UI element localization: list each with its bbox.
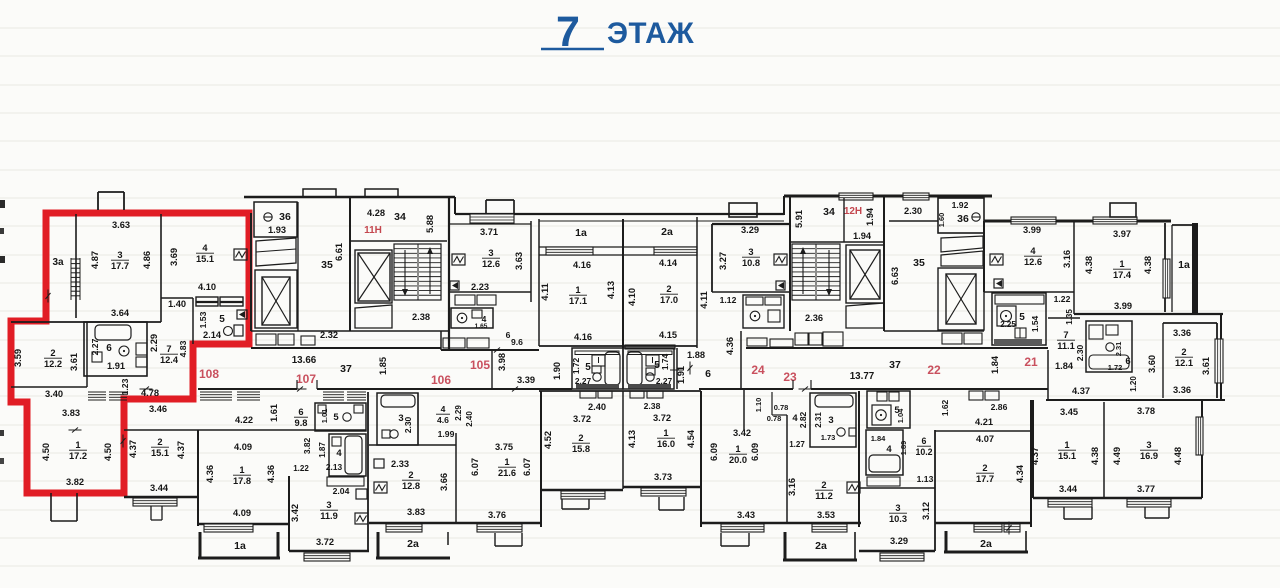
svg-text:3.83: 3.83 [407,507,425,517]
svg-text:107: 107 [296,372,316,386]
svg-text:20.0: 20.0 [729,455,747,465]
svg-text:11.2: 11.2 [815,491,833,501]
svg-text:2.32: 2.32 [320,330,338,340]
svg-text:21: 21 [1024,355,1038,369]
svg-text:15.8: 15.8 [572,444,590,454]
svg-text:4.34: 4.34 [1015,464,1025,483]
svg-text:2.13: 2.13 [326,462,343,472]
svg-text:4.37: 4.37 [1030,447,1040,465]
svg-text:13.77: 13.77 [850,371,875,382]
svg-text:3.16: 3.16 [787,478,797,496]
svg-text:15.1: 15.1 [1058,451,1076,461]
svg-text:1.85: 1.85 [378,357,388,375]
svg-text:3.63: 3.63 [112,220,130,230]
svg-text:3.99: 3.99 [1114,301,1132,311]
svg-text:37: 37 [340,363,352,375]
svg-text:3.44: 3.44 [150,483,169,493]
svg-text:4.07: 4.07 [976,434,994,444]
svg-text:37: 37 [889,359,901,371]
svg-text:3.16: 3.16 [1062,250,1072,268]
svg-text:4.36: 4.36 [266,465,276,483]
svg-text:2.29: 2.29 [149,334,159,352]
svg-text:6: 6 [922,436,927,446]
svg-text:4.37: 4.37 [176,441,186,459]
svg-text:2.31: 2.31 [814,412,823,428]
svg-text:4.28: 4.28 [367,208,385,218]
svg-text:15.1: 15.1 [196,254,214,264]
svg-text:2: 2 [157,437,162,447]
svg-text:4.16: 4.16 [574,332,592,342]
svg-text:10.2: 10.2 [915,447,932,457]
svg-text:6.09: 6.09 [709,443,719,461]
svg-text:1а: 1а [575,227,587,239]
svg-text:6.07: 6.07 [470,458,480,476]
svg-text:1.40: 1.40 [168,299,186,309]
svg-text:4.14: 4.14 [659,258,678,268]
svg-text:4.13: 4.13 [606,281,616,299]
svg-text:4.36: 4.36 [725,337,735,355]
svg-text:4.11: 4.11 [540,283,550,301]
svg-text:15.1: 15.1 [151,448,169,458]
svg-text:2.30: 2.30 [403,417,413,434]
svg-text:35: 35 [321,259,333,271]
svg-text:3.64: 3.64 [111,308,130,318]
svg-text:35: 35 [913,257,925,269]
svg-text:3.72: 3.72 [573,414,591,424]
svg-text:1.22: 1.22 [293,464,309,473]
svg-text:4: 4 [886,444,892,455]
svg-text:2: 2 [821,480,826,490]
svg-text:5: 5 [1019,312,1025,323]
svg-text:4.37: 4.37 [1072,386,1090,396]
svg-text:4.10: 4.10 [627,288,637,306]
svg-text:12.2: 12.2 [44,359,62,369]
svg-text:16.9: 16.9 [1140,451,1158,461]
svg-text:3.12: 3.12 [921,502,931,520]
svg-text:17.8: 17.8 [233,476,251,486]
svg-text:17.7: 17.7 [111,261,129,271]
svg-text:4.83: 4.83 [178,340,188,357]
svg-text:3.44: 3.44 [1059,484,1078,494]
svg-text:9.6: 9.6 [511,337,523,347]
svg-text:1.93: 1.93 [268,225,286,235]
svg-text:4.38: 4.38 [1090,447,1100,465]
svg-text:6: 6 [298,407,303,417]
svg-text:3.97: 3.97 [1113,229,1131,239]
svg-text:3.36: 3.36 [1173,385,1191,395]
svg-text:1.99: 1.99 [438,429,455,439]
svg-text:3.27: 3.27 [718,252,728,270]
svg-text:3.61: 3.61 [69,353,79,371]
svg-text:1.35: 1.35 [1065,309,1074,325]
svg-text:1.91: 1.91 [107,361,125,371]
svg-text:2.38: 2.38 [412,312,430,322]
svg-text:4.09: 4.09 [234,442,252,452]
svg-text:2.40: 2.40 [465,411,474,427]
svg-text:3.46: 3.46 [149,404,167,414]
svg-text:2.38: 2.38 [644,401,661,411]
svg-text:2.14: 2.14 [203,330,222,340]
svg-text:1.72: 1.72 [1108,363,1123,372]
svg-text:1.84: 1.84 [871,434,886,443]
svg-text:1а: 1а [1178,259,1190,271]
svg-text:1.27: 1.27 [789,440,805,449]
svg-text:105: 105 [470,358,490,372]
svg-text:1: 1 [575,285,580,295]
svg-text:1: 1 [735,444,740,454]
svg-text:4.54: 4.54 [686,429,696,448]
svg-text:7: 7 [166,344,171,354]
svg-text:1.01: 1.01 [320,409,329,424]
svg-text:6.61: 6.61 [334,243,344,261]
svg-text:21.6: 21.6 [498,468,516,478]
svg-text:3.42: 3.42 [733,428,751,438]
svg-text:5.88: 5.88 [425,215,435,233]
svg-text:6: 6 [705,368,711,380]
svg-text:9.8: 9.8 [295,418,308,428]
svg-text:3: 3 [895,503,900,513]
svg-text:1.13: 1.13 [917,474,934,484]
svg-text:12.8: 12.8 [402,481,420,491]
svg-text:1.73: 1.73 [821,433,836,442]
svg-text:34: 34 [823,206,835,218]
svg-text:4.10: 4.10 [198,282,216,292]
svg-text:4.86: 4.86 [142,251,152,269]
svg-text:17.0: 17.0 [660,295,678,305]
svg-text:0.78: 0.78 [767,414,782,423]
svg-text:2: 2 [1181,347,1186,357]
svg-text:1.10: 1.10 [754,398,763,413]
svg-text:3.43: 3.43 [737,510,755,520]
svg-text:12.1: 12.1 [1175,358,1193,368]
svg-text:36: 36 [279,211,291,223]
svg-text:6: 6 [506,330,511,340]
svg-text:11Н: 11Н [364,225,382,236]
svg-text:6: 6 [106,343,112,354]
svg-text:17.1: 17.1 [569,296,587,306]
svg-text:1а: 1а [234,540,246,552]
svg-text:3.29: 3.29 [741,225,759,235]
svg-text:3.63: 3.63 [514,252,524,270]
svg-text:6.07: 6.07 [522,458,532,476]
svg-text:12.4: 12.4 [160,355,179,365]
svg-text:4.21: 4.21 [975,417,993,427]
svg-text:0.78: 0.78 [774,403,789,412]
svg-text:3.72: 3.72 [653,413,671,423]
svg-text:3.59: 3.59 [13,349,23,367]
svg-text:2а: 2а [407,538,419,550]
svg-text:4.49: 4.49 [1112,447,1122,465]
svg-text:16.0: 16.0 [657,439,675,449]
svg-text:3: 3 [1146,440,1151,450]
svg-text:2.30: 2.30 [1075,345,1085,362]
svg-text:5: 5 [333,412,339,423]
svg-text:4.52: 4.52 [543,431,553,449]
svg-text:3.61: 3.61 [1201,357,1211,375]
svg-text:2.27: 2.27 [90,338,100,355]
svg-text:4.11: 4.11 [699,291,709,309]
svg-text:4.48: 4.48 [1173,447,1183,465]
svg-text:3: 3 [748,247,753,257]
svg-text:106: 106 [431,373,451,387]
svg-text:3.82: 3.82 [302,438,312,455]
svg-text:2: 2 [982,463,987,473]
svg-text:2.25: 2.25 [1000,320,1016,329]
svg-text:2: 2 [408,470,413,480]
svg-text:4.22: 4.22 [235,415,253,425]
svg-text:5: 5 [585,362,591,373]
svg-text:1.74: 1.74 [660,354,670,371]
svg-text:10.3: 10.3 [889,514,907,524]
svg-text:3.60: 3.60 [1147,355,1157,373]
svg-text:108: 108 [199,367,219,381]
svg-text:1: 1 [504,457,509,467]
svg-text:3: 3 [117,250,122,260]
svg-text:2: 2 [50,348,55,358]
svg-text:3.42: 3.42 [290,504,300,522]
svg-text:3а: 3а [52,257,64,268]
svg-text:3.82: 3.82 [66,477,84,487]
svg-text:3.36: 3.36 [1173,328,1191,338]
svg-text:3.73: 3.73 [654,472,672,482]
svg-text:3.66: 3.66 [439,473,449,491]
svg-text:4.6: 4.6 [437,415,449,425]
svg-text:3.71: 3.71 [480,227,498,237]
svg-text:6: 6 [1125,356,1130,367]
svg-text:1.12: 1.12 [720,295,737,305]
svg-text:4.09: 4.09 [233,508,251,518]
svg-text:3.53: 3.53 [817,510,835,520]
svg-text:7: 7 [1063,330,1068,340]
svg-text:6.09: 6.09 [750,443,760,461]
svg-text:1: 1 [1119,259,1124,269]
svg-text:3.98: 3.98 [497,353,507,371]
svg-text:4.50: 4.50 [103,443,113,461]
svg-text:12.6: 12.6 [1024,257,1042,267]
svg-text:10.8: 10.8 [742,258,760,268]
svg-text:2.31: 2.31 [1114,342,1123,357]
svg-text:36: 36 [957,213,969,225]
svg-text:2а: 2а [815,540,827,552]
svg-text:3.69: 3.69 [169,248,179,266]
svg-text:1.84: 1.84 [1055,361,1074,371]
svg-text:2: 2 [578,433,583,443]
svg-text:4.38: 4.38 [1084,256,1094,274]
svg-text:11.9: 11.9 [320,511,338,521]
svg-text:22: 22 [927,363,941,377]
svg-text:2.23: 2.23 [471,282,489,292]
svg-text:6.63: 6.63 [890,267,900,285]
svg-text:4: 4 [1030,246,1036,256]
svg-text:3: 3 [326,500,331,510]
svg-text:3.40: 3.40 [45,389,63,399]
svg-text:2: 2 [666,284,671,294]
svg-text:3.45: 3.45 [1060,407,1078,417]
svg-text:5: 5 [219,314,225,325]
svg-text:ЭТАЖ: ЭТАЖ [607,17,694,50]
svg-text:12Н: 12Н [844,206,862,217]
svg-text:2.30: 2.30 [904,206,922,216]
svg-text:1.22: 1.22 [1054,294,1071,304]
svg-text:4.16: 4.16 [573,260,591,270]
svg-text:2а: 2а [980,538,992,550]
svg-text:4.13: 4.13 [627,430,637,448]
svg-text:1: 1 [663,428,668,438]
svg-text:2.33: 2.33 [391,459,409,469]
svg-text:1.62: 1.62 [940,400,950,417]
svg-text:17.4: 17.4 [1113,270,1132,280]
svg-text:1.53: 1.53 [198,311,208,328]
svg-text:1.94: 1.94 [865,207,875,226]
svg-text:3.72: 3.72 [316,537,334,547]
svg-text:1.54: 1.54 [1030,316,1040,333]
svg-text:1.20: 1.20 [1129,376,1138,392]
svg-text:4.37: 4.37 [128,440,138,458]
svg-text:1.90: 1.90 [552,362,562,380]
svg-text:3.29: 3.29 [890,536,908,546]
svg-text:4: 4 [441,404,446,414]
svg-text:13.66: 13.66 [292,355,317,366]
svg-text:3.77: 3.77 [1137,484,1155,494]
svg-text:1: 1 [239,465,244,475]
svg-text:1.84: 1.84 [990,355,1000,374]
svg-text:1: 1 [75,440,80,450]
svg-text:1.87: 1.87 [318,442,327,458]
svg-text:1: 1 [1064,440,1069,450]
svg-text:2.86: 2.86 [991,402,1008,412]
svg-text:12.6: 12.6 [482,259,500,269]
svg-text:2а: 2а [661,226,673,238]
svg-text:3.39: 3.39 [517,375,535,385]
svg-text:3: 3 [488,248,493,258]
svg-text:3: 3 [828,415,833,426]
svg-text:3.99: 3.99 [1023,225,1041,235]
svg-text:5.91: 5.91 [794,210,804,228]
svg-text:1.94: 1.94 [853,231,872,241]
svg-text:1.65: 1.65 [475,323,488,330]
svg-text:4: 4 [336,448,342,459]
svg-text:1.88: 1.88 [687,350,705,360]
svg-text:34: 34 [394,211,406,223]
svg-text:1.89: 1.89 [899,441,908,456]
svg-text:1.60: 1.60 [937,213,946,228]
svg-text:4.38: 4.38 [1143,256,1153,274]
svg-text:2.04: 2.04 [333,486,350,496]
svg-text:1.23: 1.23 [120,378,130,395]
svg-text:3.76: 3.76 [488,510,506,520]
svg-text:17.7: 17.7 [976,474,994,484]
svg-text:2.82: 2.82 [798,412,808,429]
svg-text:4: 4 [202,243,208,253]
svg-text:4.50: 4.50 [41,443,51,461]
svg-text:4.36: 4.36 [205,465,215,483]
svg-text:24: 24 [751,363,765,377]
svg-text:1.92: 1.92 [952,200,969,210]
svg-text:2.29: 2.29 [454,405,463,421]
svg-text:3.78: 3.78 [1137,406,1155,416]
svg-text:17.2: 17.2 [69,451,87,461]
svg-text:3.83: 3.83 [62,408,80,418]
svg-text:23: 23 [783,370,797,384]
svg-text:3.75: 3.75 [495,442,513,452]
svg-text:1.61: 1.61 [269,404,279,422]
svg-text:4.87: 4.87 [90,251,100,269]
svg-text:2.40: 2.40 [588,402,606,412]
svg-text:1.04: 1.04 [896,408,905,423]
svg-text:2.36: 2.36 [805,313,823,323]
svg-text:1.72: 1.72 [571,358,581,375]
svg-text:4.15: 4.15 [659,330,677,340]
svg-text:11.1: 11.1 [1057,341,1075,351]
